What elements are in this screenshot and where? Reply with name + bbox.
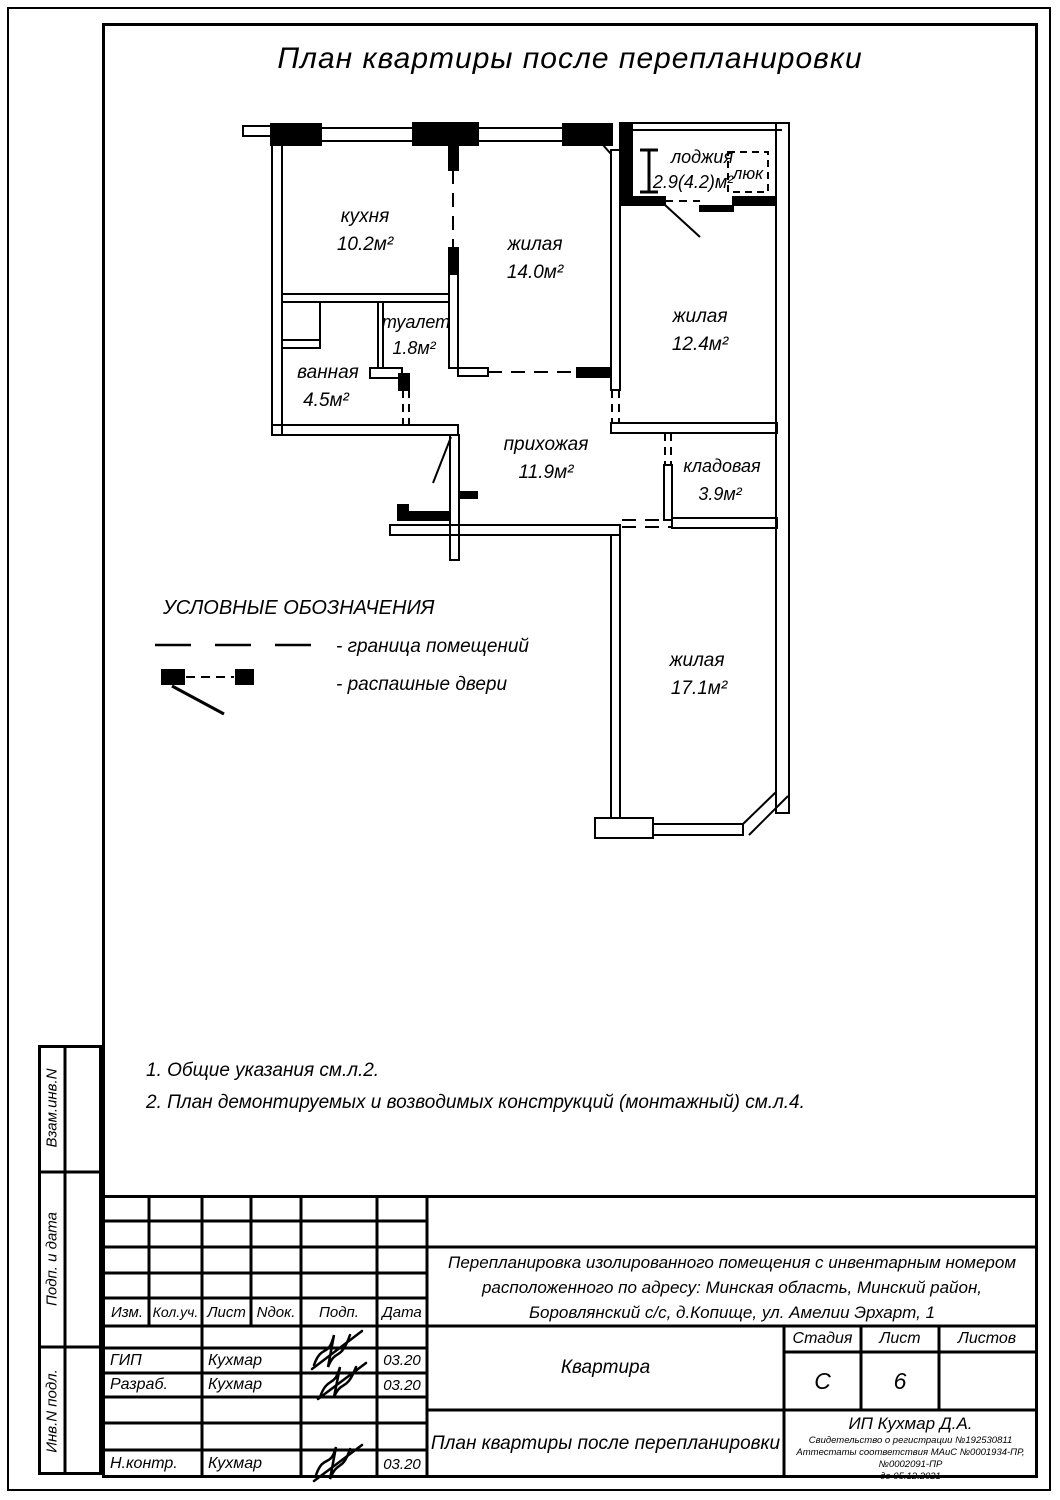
room-hall-area: 11.9м² [519,462,575,483]
legend-door-symbol [162,670,253,714]
stamp-stage-label: Стадия [784,1326,861,1352]
exterior-left-wall [272,124,282,435]
room-living2-name: жилая [671,306,727,327]
room-hatch-name: люк [732,164,764,183]
room-bath-name: ванная [297,362,359,383]
sidebar-cell-inv: Инв.N подл. [44,1369,61,1453]
stamp-sheet-title: План квартиры после перепланировки [427,1410,784,1478]
room-toilet-area: 1.8м² [392,338,436,358]
room-kitchen-area: 10.2м² [337,234,394,255]
stamp-project: Перепланировка изолированного помещения … [432,1250,1032,1324]
signature-gip-razrab [304,1325,378,1403]
company-cert-2: Аттестаты соответствия МАиС №0001934-ПР,… [786,1447,1035,1471]
stamp-name-razrab: Кухмар [208,1373,298,1397]
company-name: ИП Кухмар Д.А. [786,1413,1035,1435]
stamp-sheet-label: Лист [861,1326,939,1352]
signature-nkontr [306,1439,376,1487]
legend-boundary-label: - граница помещений [336,636,529,657]
stamp-col-kol: Кол.уч. [149,1298,202,1326]
floor-plan: кухня 10.2м² жилая 14.0м² лоджия 2.9(4.2… [105,85,1035,1095]
general-notes: 1. Общие указания см.л.2. 2. План демонт… [146,1055,886,1119]
legend: УСЛОВНЫЕ ОБОЗНАЧЕНИЯ - граница помещений… [155,597,529,714]
living1-hall-boundary [458,368,611,377]
room-loggia-area: 2.9(4.2)м² [652,172,734,192]
room-loggia-name: лоджия [670,147,734,167]
drawing-sheet: { "page": { "title": "План квартиры посл… [0,0,1060,1500]
stamp-col-podp: Подп. [301,1298,377,1326]
note-1: 1. Общие указания см.л.2. [146,1055,886,1087]
room-kitchen-name: кухня [341,206,390,227]
room-living1-name: жилая [506,234,562,255]
stamp-sheets-label: Листов [939,1326,1035,1352]
stamp-role-nkontr: Н.контр. [110,1450,200,1478]
side-stamp-column: Взам.инв.N Подп. и дата Инв.N подл. [38,1045,102,1475]
stamp-col-list: Лист [202,1298,251,1326]
sidebar-cell-podp: Подп. и дата [44,1212,61,1306]
room-living3-area: 17.1м² [671,678,728,699]
stamp-role-razrab: Разраб. [110,1373,200,1397]
room-bath-area: 4.5м² [303,390,349,411]
stamp-col-data: Дата [377,1298,427,1326]
stamp-sheet-value: 6 [861,1352,939,1410]
company-cert-3: до 05.12.2021 [786,1471,1035,1483]
exterior-top-wall [243,123,612,154]
company-cert-1: Свидетельство о регистрации №192530811 [786,1435,1035,1447]
exterior-right-wall [776,123,789,813]
stamp-date-gip: 03.20 [377,1348,427,1373]
stamp-stage-value: С [784,1352,861,1410]
stamp-role-gip: ГИП [110,1348,200,1373]
stamp-name-gip: Кухмар [208,1348,298,1373]
title-block: Изм. Кол.уч. Лист Nдок. Подп. Дата ГИП К… [102,1195,1038,1478]
room-living1-area: 14.0м² [507,262,564,283]
stamp-object: Квартира [427,1326,784,1410]
room-storage-name: кладовая [683,456,761,476]
sidebar-cell-vzam: Взам.инв.N [44,1068,61,1147]
stamp-sheets-value [939,1352,1035,1410]
stamp-name-nkontr: Кухмар [208,1450,298,1478]
stamp-date-razrab: 03.20 [377,1373,427,1397]
stamp-date-nkontr: 03.20 [377,1450,427,1478]
room-hall-name: прихожая [504,434,589,455]
room-living2-area: 12.4м² [672,334,729,355]
room-toilet-name: туалет [382,312,450,332]
stamp-col-ndok: Nдок. [251,1298,301,1326]
stamp-col-izm: Изм. [105,1298,149,1326]
note-2: 2. План демонтируемых и возводимых конст… [146,1087,886,1119]
room-living3-name: жилая [668,650,724,671]
stamp-company-block: ИП Кухмар Д.А. Свидетельство о регистрац… [786,1413,1035,1476]
legend-door-label: - распашные двери [336,674,507,695]
page-title: План квартиры после перепланировки [102,42,1038,76]
legend-title: УСЛОВНЫЕ ОБОЗНАЧЕНИЯ [162,597,435,619]
room-storage-area: 3.9м² [698,484,742,504]
